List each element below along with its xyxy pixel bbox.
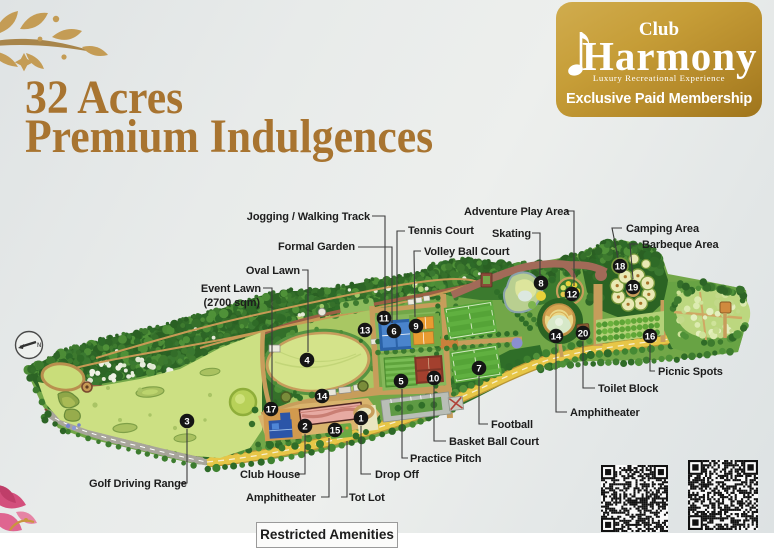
svg-text:17: 17 — [266, 404, 277, 415]
svg-text:16: 16 — [645, 331, 656, 342]
svg-text:Picnic Spots: Picnic Spots — [658, 366, 723, 378]
svg-text:Skating: Skating — [492, 228, 531, 240]
svg-text:Jogging / Walking Track: Jogging / Walking Track — [247, 211, 371, 223]
svg-text:8: 8 — [538, 278, 543, 289]
svg-text:4: 4 — [304, 355, 310, 366]
svg-text:9: 9 — [413, 321, 418, 332]
svg-text:20: 20 — [578, 328, 589, 339]
svg-text:18: 18 — [615, 261, 626, 272]
svg-text:N: N — [37, 343, 41, 349]
svg-text:13: 13 — [360, 325, 371, 336]
svg-text:Golf Driving Range: Golf Driving Range — [89, 478, 187, 490]
svg-text:Club House: Club House — [240, 469, 300, 481]
svg-text:Formal Garden: Formal Garden — [278, 241, 355, 253]
svg-text:Tennis Court: Tennis Court — [408, 225, 474, 237]
svg-text:11: 11 — [379, 313, 390, 324]
svg-text:7: 7 — [476, 363, 481, 374]
svg-text:Tot Lot: Tot Lot — [349, 492, 385, 504]
svg-text:Basket Ball Court: Basket Ball Court — [449, 436, 539, 448]
svg-text:14: 14 — [551, 331, 562, 342]
svg-text:Practice Pitch: Practice Pitch — [410, 453, 482, 465]
svg-text:1: 1 — [358, 413, 364, 424]
svg-text:14: 14 — [317, 391, 328, 402]
svg-text:Toilet Block: Toilet Block — [598, 383, 659, 395]
svg-text:Football: Football — [491, 419, 533, 431]
svg-text:(2700 sqm): (2700 sqm) — [204, 297, 261, 309]
svg-text:Event Lawn: Event Lawn — [201, 283, 262, 295]
svg-text:5: 5 — [398, 376, 404, 387]
svg-text:19: 19 — [628, 282, 639, 293]
svg-text:3: 3 — [184, 416, 189, 427]
svg-text:2: 2 — [302, 421, 307, 432]
svg-text:Camping Area: Camping Area — [626, 223, 700, 235]
svg-text:15: 15 — [330, 425, 341, 436]
svg-text:10: 10 — [429, 373, 440, 384]
svg-text:Amphitheater: Amphitheater — [570, 407, 641, 419]
svg-text:Oval Lawn: Oval Lawn — [246, 265, 300, 277]
svg-text:Barbeque Area: Barbeque Area — [642, 239, 720, 251]
svg-text:Adventure Play Area: Adventure Play Area — [464, 206, 570, 218]
svg-text:Volley Ball Court: Volley Ball Court — [424, 246, 510, 258]
svg-text:Drop Off: Drop Off — [375, 469, 419, 481]
svg-text:6: 6 — [391, 326, 396, 337]
svg-text:Amphitheater: Amphitheater — [246, 492, 317, 504]
svg-text:12: 12 — [567, 289, 578, 300]
